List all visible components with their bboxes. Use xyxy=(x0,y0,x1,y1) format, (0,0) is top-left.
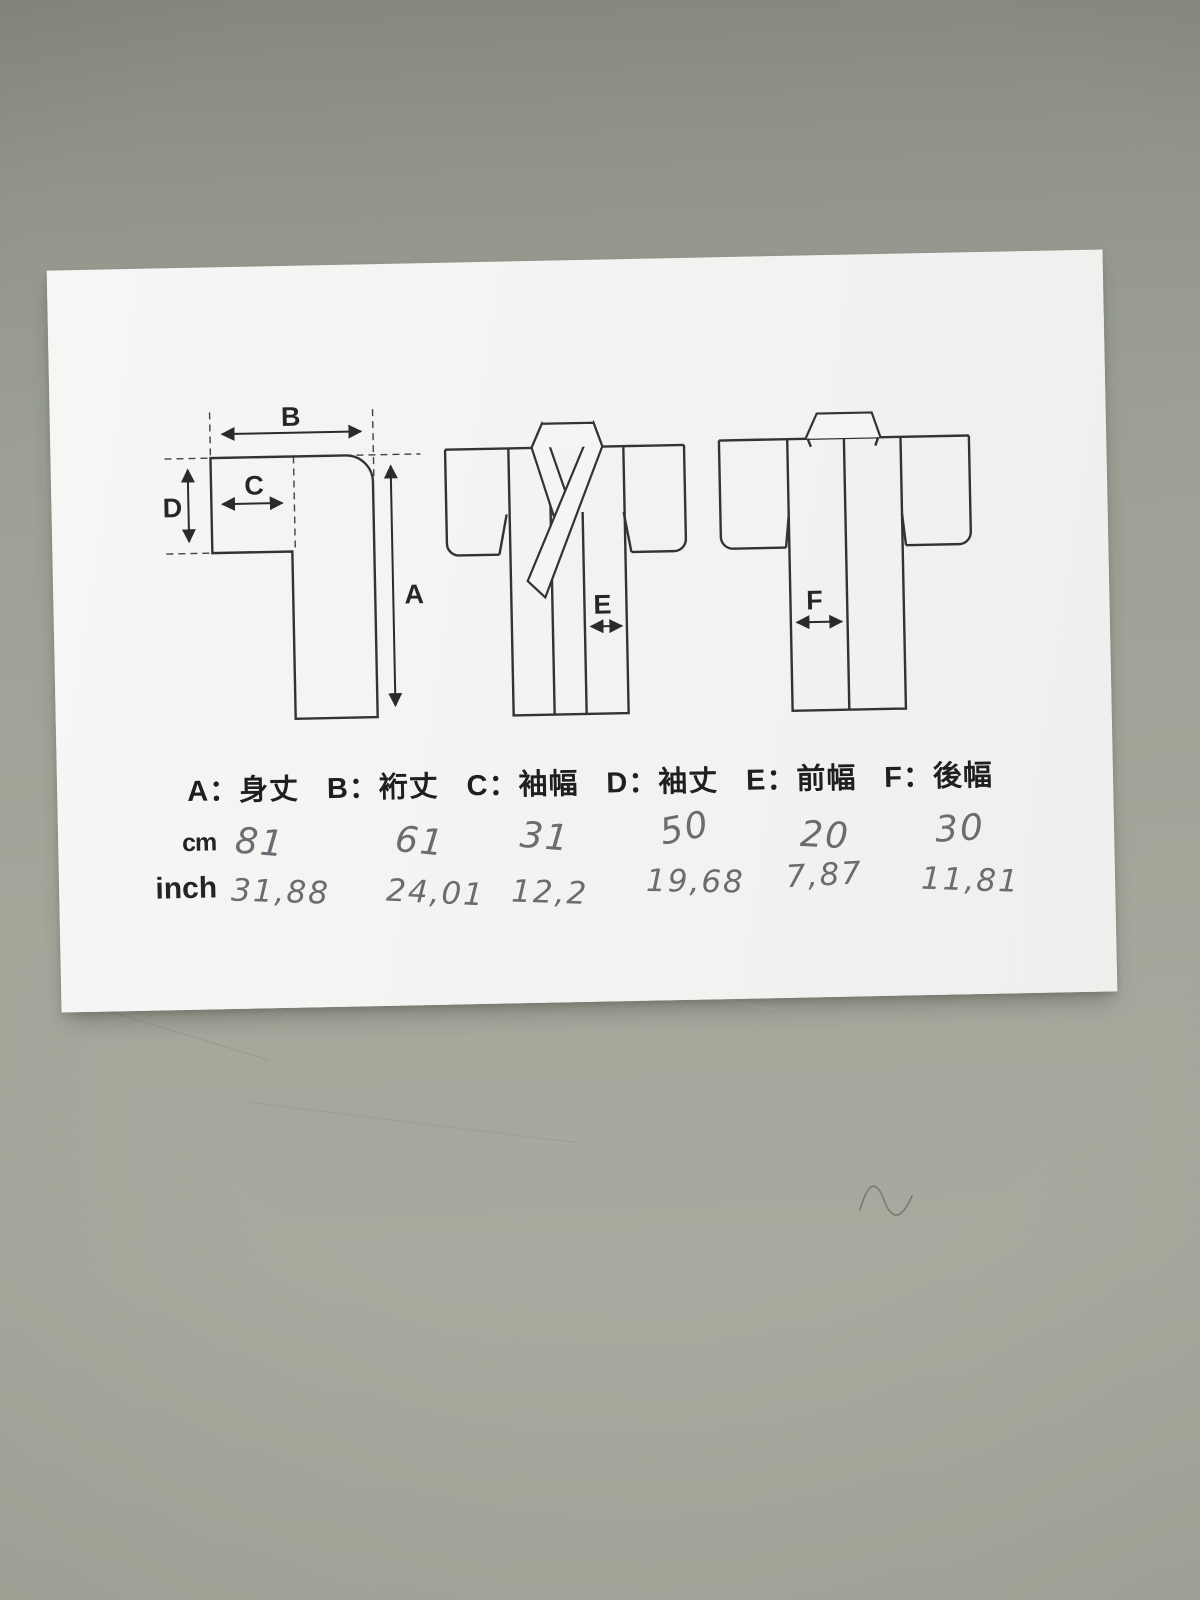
pencil-mark-on-table xyxy=(852,1162,922,1232)
label-F: F xyxy=(806,585,823,615)
arrow-C xyxy=(222,503,282,504)
back-kimono-diagram: F xyxy=(718,411,974,713)
cm-value-c: 31 xyxy=(518,815,571,860)
centre-back-seam xyxy=(844,438,849,710)
legend-item-d: D：袖丈 xyxy=(606,757,719,801)
flat-kimono-diagram: B C D A xyxy=(161,399,427,721)
cm-value-a: 81 xyxy=(234,820,287,865)
photo-of-kimono-size-chart: B C D A xyxy=(0,0,1200,1600)
collar-back-fold xyxy=(531,423,602,448)
back-collar xyxy=(805,412,880,439)
back-left-sleeve xyxy=(719,439,786,549)
legend-item-b: B：裄丈 xyxy=(326,763,439,807)
front-left-sleeve xyxy=(445,449,499,556)
legend-item-f: F：後幅 xyxy=(884,752,994,796)
inch-value-e: 7,87 xyxy=(785,855,864,895)
inch-value-c: 12,2 xyxy=(511,873,589,911)
cm-value-e: 20 xyxy=(799,814,851,857)
front-collar xyxy=(525,423,606,598)
dimension-arrows xyxy=(187,431,395,710)
cm-value-d: 50 xyxy=(656,804,713,854)
table-scratch xyxy=(249,1102,577,1143)
label-C: C xyxy=(244,470,264,500)
arrow-B xyxy=(222,431,361,434)
size-chart-sheet: B C D A xyxy=(47,249,1118,1012)
arrow-E xyxy=(591,626,622,627)
legend-item-a: A：身丈 xyxy=(187,766,300,810)
label-B: B xyxy=(281,402,301,432)
cm-value-f: 30 xyxy=(934,807,986,851)
inch-value-f: 11,81 xyxy=(921,861,1021,900)
inch-value-b: 24,01 xyxy=(385,873,485,914)
cm-label: cm xyxy=(114,828,217,859)
arrow-F xyxy=(797,621,842,622)
cm-value-b: 61 xyxy=(393,819,447,865)
kimono-diagrams: B C D A xyxy=(47,249,1113,770)
arrow-D xyxy=(188,470,189,542)
arrow-A xyxy=(391,466,396,706)
label-A: A xyxy=(404,579,424,609)
back-right-sleeve xyxy=(904,435,971,545)
label-E: E xyxy=(593,589,612,619)
label-D: D xyxy=(162,493,182,523)
inch-label: inch xyxy=(115,871,218,907)
front-right-sleeve xyxy=(629,445,686,552)
legend-item-c: C：袖幅 xyxy=(466,760,579,804)
inch-value-d: 19,68 xyxy=(646,863,745,900)
legend-item-e: E：前幅 xyxy=(746,755,857,799)
front-kimono-diagram: E xyxy=(445,421,690,717)
inch-value-a: 31,88 xyxy=(231,873,331,912)
